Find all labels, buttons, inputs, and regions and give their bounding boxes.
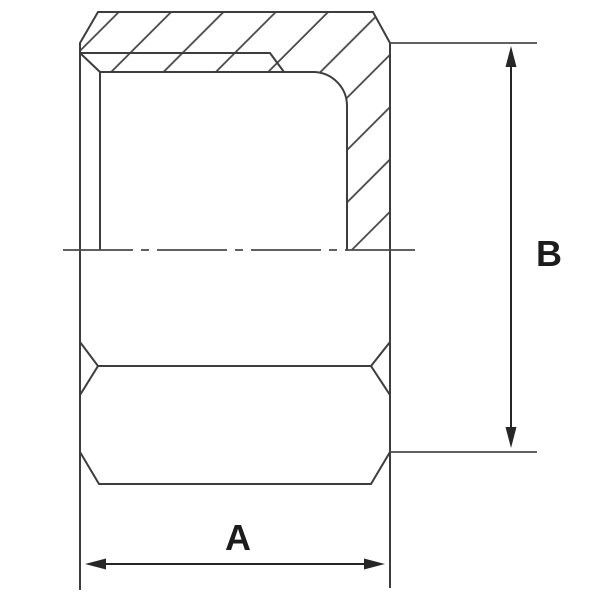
dimension-a-label: A [225,517,251,558]
hatched-cut-region [80,12,390,250]
dim-b-arrowhead-bottom-icon [506,427,517,448]
hex-corner-left [80,342,98,395]
dimension-a: A [85,517,385,570]
bottom-face-line [80,452,390,484]
dimension-b-label: B [536,233,562,274]
dim-a-arrowhead-right-icon [364,559,385,570]
hex-corner-right [371,342,390,395]
section-hatching [80,12,390,250]
dimension-b: B [390,43,562,452]
bore-ceiling-fillet-and-right-wall [100,72,347,250]
technical-drawing-canvas: A B [0,0,600,600]
dim-a-arrowhead-left-icon [85,559,106,570]
part-outline [80,12,390,590]
dim-b-arrowhead-top-icon [506,46,517,67]
outer-profile-line [80,12,390,590]
hex-cap-section-drawing: A B [0,0,600,600]
